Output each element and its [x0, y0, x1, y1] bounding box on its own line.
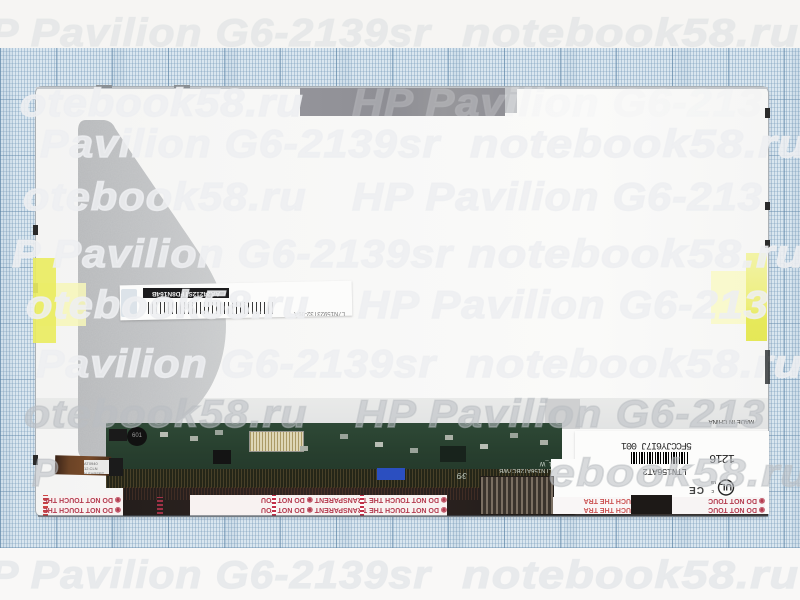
- svg-text:c: c: [711, 488, 714, 494]
- svg-text:us: us: [710, 479, 716, 485]
- svg-text:UL: UL: [720, 482, 732, 492]
